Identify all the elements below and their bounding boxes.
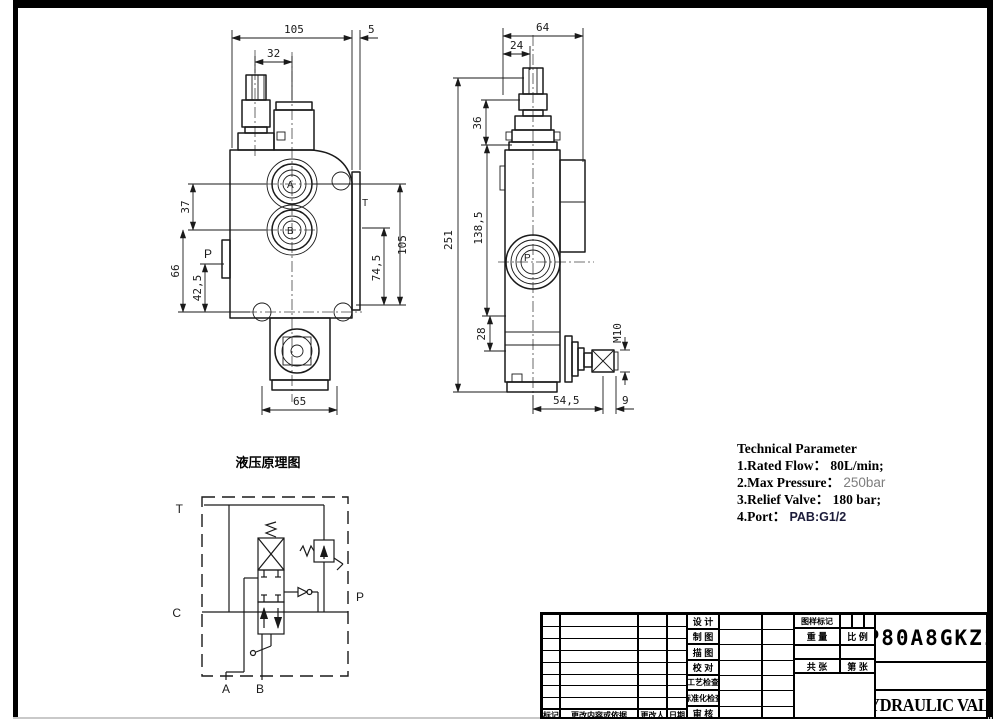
cell-standard-check: 标准化检查 <box>687 690 719 706</box>
rev-content-label: 更改内容或依据 <box>560 709 638 719</box>
cell-trace: 描 图 <box>687 644 719 660</box>
cell-scale: 比 例 <box>840 628 875 645</box>
technical-parameters: Technical Parameter 1.Rated Flow： 80L/mi… <box>737 440 987 526</box>
part-number: P80A8GKZ1 <box>875 614 990 662</box>
bottom-port <box>270 318 330 390</box>
tech-item-1-value: 80L/min; <box>830 458 883 473</box>
lever-knob-icon <box>251 651 256 656</box>
mark-box <box>864 614 875 628</box>
rev-row-line <box>542 697 687 698</box>
dim-9: 9 <box>622 394 629 407</box>
dim-36: 36 <box>471 116 484 129</box>
side-dimensions: 64 24 36 138,5 28 251 <box>442 21 634 414</box>
drawing-sheet: A B P T <box>0 0 1000 719</box>
front-dimensions: 105 5 32 37 66 42,5 105 <box>169 23 409 415</box>
rev-by-label: 更改人 <box>638 709 667 719</box>
relief-valve-symbol <box>300 540 343 570</box>
tech-item-4-label: 4.Port： <box>737 509 786 524</box>
check-valve-symbol <box>298 588 312 597</box>
rev-row-line <box>542 626 687 627</box>
rev-row-line <box>542 685 687 686</box>
cell-drawing-mark: 图样标记 <box>794 614 840 628</box>
schematic-boundary <box>202 497 348 676</box>
dim-74-5: 74,5 <box>370 255 383 282</box>
port-a: A <box>272 164 312 204</box>
port-a-label: A <box>287 180 294 191</box>
cell-review: 审 核 <box>687 706 719 719</box>
cell-design: 设 计 <box>687 614 719 629</box>
side-block <box>560 160 585 252</box>
rev-row-line <box>542 638 687 639</box>
dim-42-5: 42,5 <box>191 275 204 302</box>
rev-mark-label: 标记 <box>542 709 560 719</box>
tech-item-4-value: PAB:G1/2 <box>789 510 846 524</box>
p-port-label: P <box>204 247 212 261</box>
tech-item-2: 2.Max Pressure： 250bar <box>737 474 987 491</box>
label-b: B <box>256 682 264 696</box>
dim-65: 65 <box>293 395 306 408</box>
side-plate <box>352 172 360 310</box>
hydraulic-schematic: 液压原理图 T C P A B <box>172 455 364 696</box>
relief-adjuster <box>238 75 274 150</box>
p-port-boss <box>222 240 230 278</box>
side-view: P 64 24 <box>442 21 634 414</box>
spring-icon <box>266 522 276 537</box>
product-name: HYDRAULIC VALVE <box>875 695 990 716</box>
approval-row-line <box>719 660 794 661</box>
label-c: C <box>172 606 181 620</box>
cell-weight: 重 量 <box>794 628 840 645</box>
approval-row-line <box>719 675 794 676</box>
dim-37: 37 <box>179 200 192 213</box>
cell-check: 校 对 <box>687 660 719 675</box>
dim-105-right: 105 <box>396 235 409 255</box>
dim-138-5: 138,5 <box>472 211 485 244</box>
dim-251: 251 <box>442 230 455 250</box>
dim-64: 64 <box>536 21 550 34</box>
dim-5: 5 <box>368 23 375 36</box>
tech-item-3-label: 3.Relief Valve： <box>737 492 829 507</box>
schematic-title: 液压原理图 <box>235 455 300 470</box>
cell-scale-value <box>840 645 875 659</box>
label-a: A <box>222 682 230 696</box>
cell-material <box>875 662 990 690</box>
dim-66: 66 <box>169 264 182 277</box>
cell-sheet-no: 第 张 <box>840 659 875 673</box>
cell-weight-value <box>794 645 840 659</box>
t-port-label: T <box>362 198 368 209</box>
dim-105-top: 105 <box>284 23 304 36</box>
dim-32: 32 <box>267 47 280 60</box>
approval-row-line <box>719 706 794 707</box>
label-t: T <box>176 502 184 516</box>
tech-item-2-value: 250bar <box>843 475 885 490</box>
bottom-flange <box>507 382 557 392</box>
tech-item-4: 4.Port： PAB:G1/2 <box>737 508 987 526</box>
approval-row-line <box>719 690 794 691</box>
port-b: B <box>272 210 312 250</box>
rev-row-line <box>542 650 687 651</box>
p-side-label: P <box>524 253 531 264</box>
valve-body-side <box>505 150 560 382</box>
label-p: P <box>356 590 364 604</box>
tech-item-3: 3.Relief Valve： 180 bar; <box>737 491 987 508</box>
rev-date-label: 日期 <box>667 709 687 719</box>
tech-item-2-label: 2.Max Pressure： <box>737 475 840 490</box>
cell-process-check: 工艺检查 <box>687 675 719 690</box>
tech-item-1: 1.Rated Flow： 80L/min; <box>737 457 987 474</box>
circuit-lines <box>202 505 348 680</box>
dim-54-5: 54,5 <box>553 394 580 407</box>
port-b-label: B <box>287 226 294 237</box>
spool-valve-symbol <box>251 522 285 656</box>
cell-total-sheets: 共 张 <box>794 659 840 673</box>
dim-m10: M10 <box>611 323 624 343</box>
front-view: A B P T <box>169 23 409 415</box>
bottom-detail <box>512 374 522 382</box>
dim-24: 24 <box>510 39 524 52</box>
cell-company <box>794 673 875 719</box>
mark-box <box>840 614 852 628</box>
rev-row-line <box>542 674 687 675</box>
tech-item-1-label: 1.Rated Flow： <box>737 458 827 473</box>
title-block: 标记 更改内容或依据 更改人 日期 设 计 制 图 描 图 校 对 工艺检查 标… <box>540 612 988 719</box>
cell-draft: 制 图 <box>687 629 719 644</box>
product-name-cell: HYDRAULIC VALVE <box>875 690 990 719</box>
mark-box <box>852 614 864 628</box>
approval-row-line <box>719 629 794 630</box>
tech-item-3-value: 180 bar; <box>833 492 881 507</box>
bolt-hole <box>332 172 350 190</box>
spool-cap <box>274 102 314 150</box>
rev-row-line <box>542 662 687 663</box>
approval-row-line <box>719 644 794 645</box>
tech-title: Technical Parameter <box>737 440 987 457</box>
dim-28: 28 <box>475 327 488 340</box>
spring-icon <box>300 546 314 556</box>
